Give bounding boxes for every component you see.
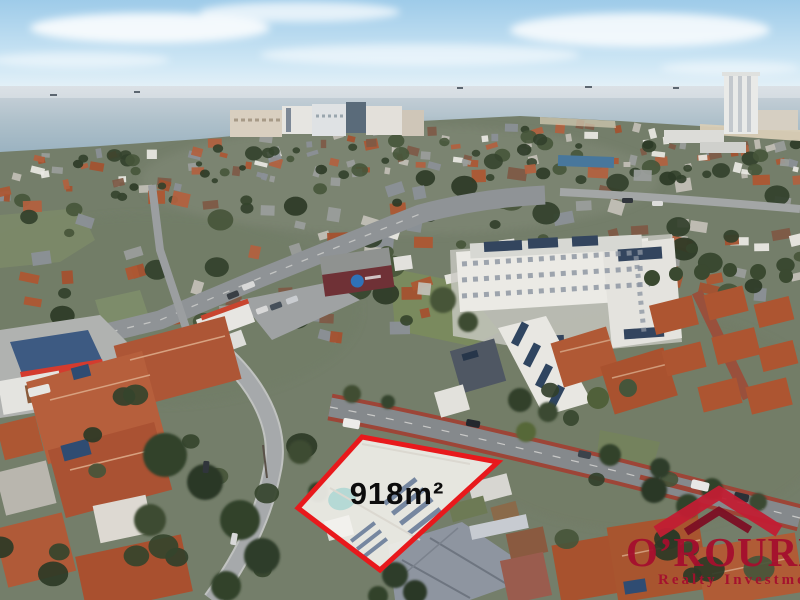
tree — [83, 427, 102, 442]
tree — [642, 140, 653, 149]
tree — [555, 529, 579, 549]
tree — [400, 315, 413, 326]
tree — [262, 148, 275, 158]
rooftop — [31, 250, 52, 266]
rooftop — [524, 164, 536, 174]
rooftop — [505, 124, 518, 132]
tree — [416, 170, 435, 186]
tree — [712, 163, 730, 178]
tree — [338, 170, 349, 179]
tree — [64, 229, 74, 237]
rooftop — [613, 158, 618, 164]
rooftop — [52, 167, 64, 174]
tree — [702, 171, 711, 179]
tree — [683, 165, 692, 172]
rooftop — [792, 175, 800, 185]
rooftop — [584, 132, 598, 139]
tree — [472, 150, 481, 157]
tree — [239, 165, 246, 171]
tree — [666, 217, 690, 237]
tree — [588, 473, 604, 486]
tree — [381, 158, 389, 164]
rooftop — [326, 207, 341, 223]
rooftop — [330, 177, 340, 186]
rooftop — [306, 141, 312, 147]
tree — [111, 191, 121, 199]
tower-building — [722, 72, 760, 134]
tree — [486, 174, 495, 181]
tree — [313, 183, 327, 194]
rooftop — [384, 167, 390, 174]
tree — [20, 210, 38, 224]
tree — [745, 279, 763, 293]
tree — [286, 156, 294, 163]
rooftop — [631, 225, 649, 235]
tree — [284, 197, 307, 216]
tree — [58, 288, 71, 299]
rooftop — [366, 138, 377, 147]
rooftop — [329, 331, 342, 343]
tree — [200, 170, 210, 178]
tree — [125, 154, 140, 166]
tree — [213, 144, 223, 153]
rooftop — [679, 142, 686, 149]
tree — [439, 138, 449, 146]
rooftop — [752, 175, 770, 186]
rooftop — [147, 150, 157, 159]
rooftop — [40, 170, 49, 178]
tree — [753, 149, 768, 162]
rooftop — [414, 237, 433, 248]
rooftop — [427, 127, 437, 136]
rooftop — [491, 134, 498, 141]
rooftop — [321, 140, 326, 148]
tree — [245, 146, 262, 160]
tree — [748, 164, 763, 176]
tree — [196, 161, 202, 166]
tree — [205, 257, 229, 277]
tree — [38, 562, 68, 587]
tree — [78, 155, 88, 163]
rooftop — [754, 243, 769, 251]
tree — [129, 183, 138, 191]
tree — [208, 209, 234, 230]
tree — [88, 463, 106, 478]
small-shop — [393, 255, 413, 271]
tree — [456, 240, 466, 249]
tree — [131, 167, 141, 175]
rooftop — [780, 159, 789, 167]
tree — [575, 143, 582, 149]
rooftop — [61, 270, 73, 284]
brand-tagline: Realty Investments — [658, 572, 800, 588]
tree — [532, 202, 560, 225]
rooftop — [261, 205, 275, 216]
tree — [517, 144, 531, 156]
tree — [348, 144, 357, 151]
tree — [212, 178, 218, 183]
tree — [49, 543, 70, 560]
property-area-label: 918m² — [350, 476, 445, 511]
rooftop — [481, 135, 488, 142]
tree — [388, 134, 404, 147]
rooftop — [634, 170, 652, 182]
tree — [123, 385, 148, 406]
tree — [107, 149, 122, 162]
tree — [723, 230, 739, 243]
tree — [536, 168, 550, 180]
aerial-photo: 918m² O’ROURKE Realty Investments — [0, 0, 800, 600]
tree — [393, 147, 410, 161]
rooftop — [420, 151, 430, 160]
tree — [541, 383, 559, 398]
tree — [316, 165, 328, 175]
tree — [576, 175, 587, 184]
tree — [240, 195, 252, 205]
rooftop — [576, 200, 592, 211]
tree — [124, 545, 150, 566]
rooftop — [202, 200, 218, 210]
rooftop — [417, 282, 431, 295]
rooftop — [698, 154, 707, 160]
tree — [351, 163, 368, 177]
rooftop — [623, 162, 630, 167]
tree — [490, 220, 501, 229]
tree — [676, 175, 687, 184]
tree — [158, 183, 166, 190]
tree — [254, 483, 279, 503]
brand-name: O’ROURKE — [626, 529, 800, 575]
tree — [606, 174, 629, 192]
tree — [484, 154, 503, 170]
rooftop — [412, 185, 426, 200]
tree — [293, 147, 301, 153]
tree — [392, 199, 402, 207]
rooftop — [588, 166, 609, 179]
tree — [686, 244, 698, 254]
horizon-haze — [0, 86, 800, 98]
rooftop — [416, 162, 426, 168]
tree — [659, 172, 676, 186]
rooftop — [245, 161, 252, 169]
tree — [533, 134, 547, 146]
tree — [148, 534, 178, 559]
tree — [220, 168, 230, 176]
rooftop — [565, 134, 572, 142]
